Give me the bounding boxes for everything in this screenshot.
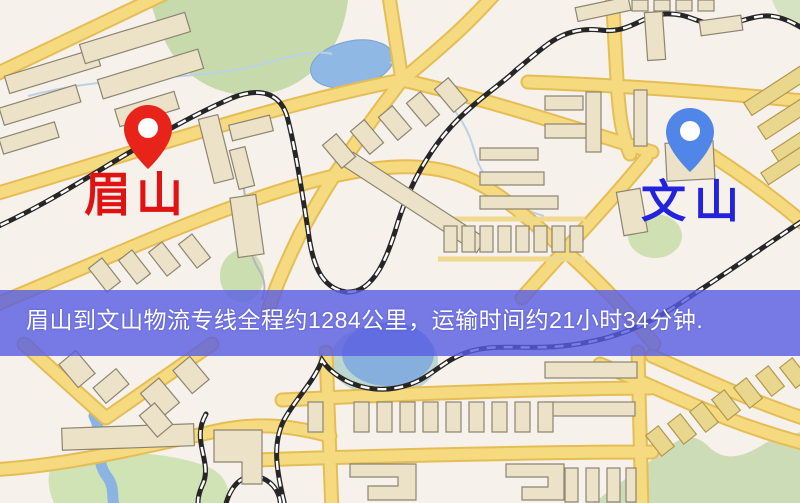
- route-info-banner: 眉山到文山物流专线全程约1284公里，运输时间约21小时34分钟.: [0, 290, 800, 356]
- map-graphics: [0, 0, 800, 503]
- map-screenshot: 眉山 文山 眉山到文山物流专线全程约1284公里，运输时间约21小时34分钟.: [0, 0, 800, 503]
- route-info-text: 眉山到文山物流专线全程约1284公里，运输时间约21小时34分钟.: [26, 301, 703, 335]
- origin-pin-icon[interactable]: [124, 104, 172, 170]
- origin-label: 眉山: [84, 172, 188, 219]
- destination-pin-icon[interactable]: [666, 107, 714, 173]
- destination-label: 文山: [641, 179, 747, 224]
